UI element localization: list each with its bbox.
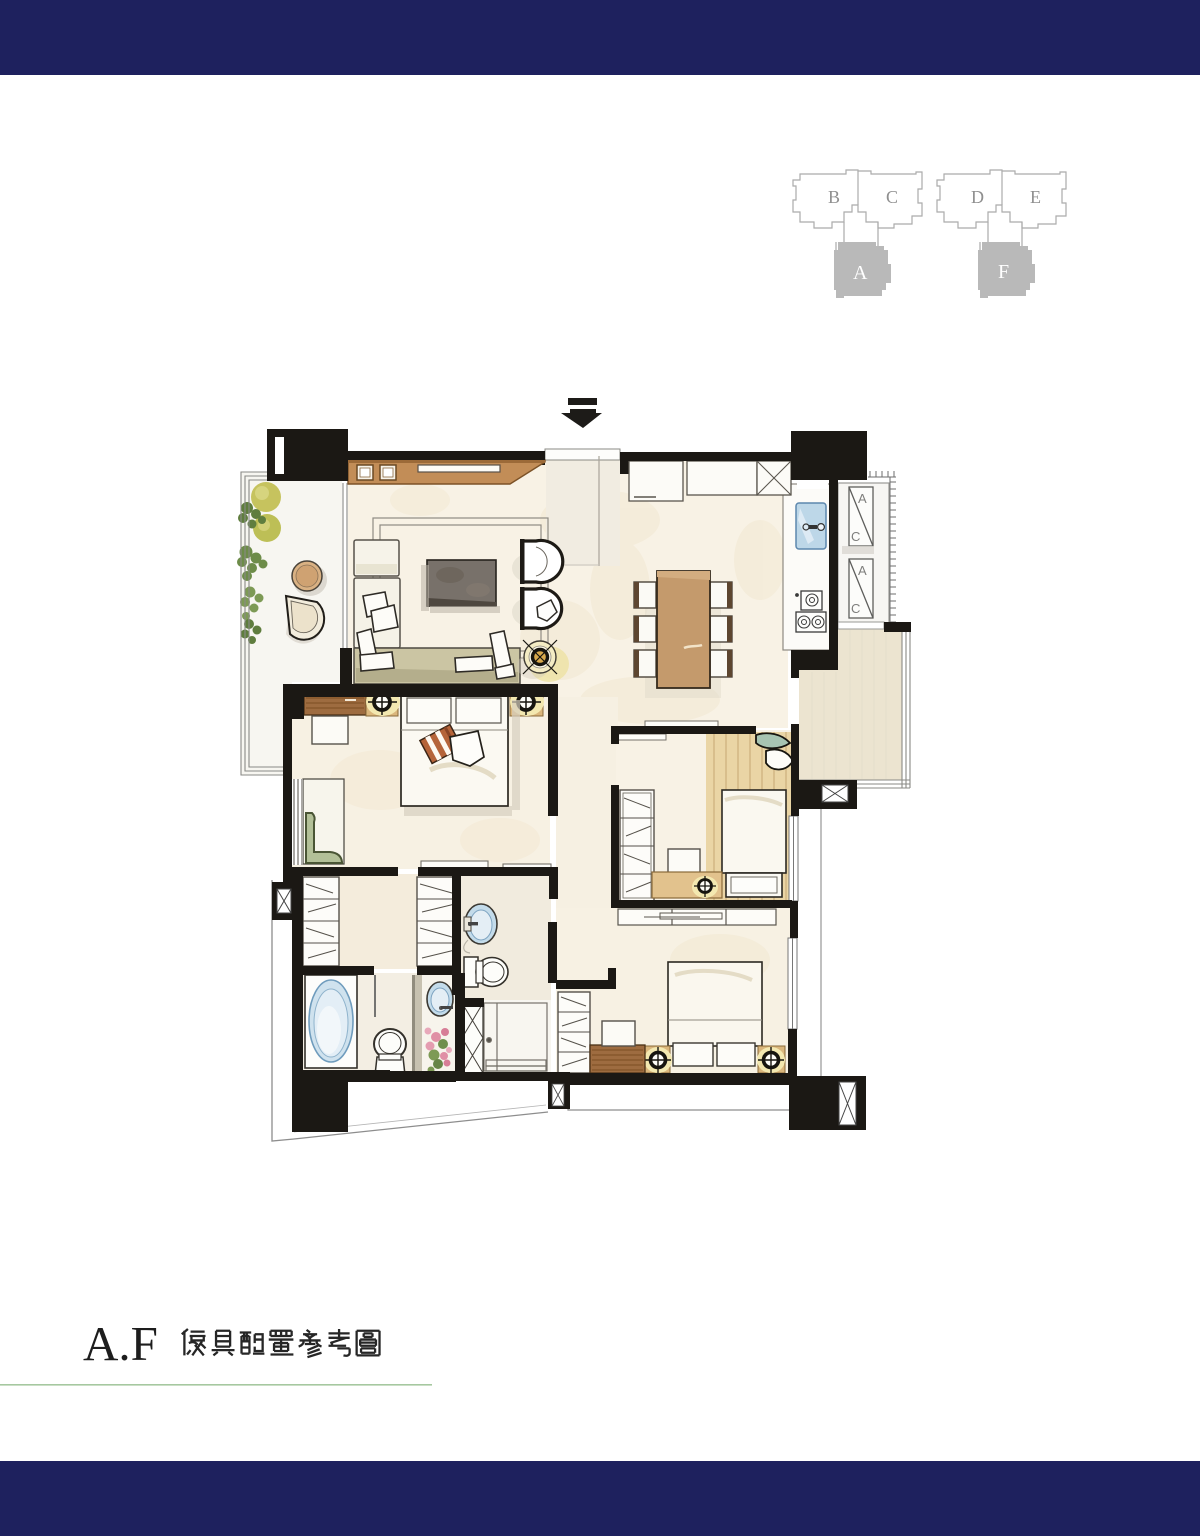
svg-text:F: F <box>998 261 1009 283</box>
svg-text:C: C <box>886 187 898 207</box>
svg-text:C: C <box>851 529 860 544</box>
svg-text:D: D <box>971 187 984 207</box>
svg-text:C: C <box>851 601 860 616</box>
svg-text:A: A <box>858 563 867 578</box>
svg-text:A: A <box>853 262 868 284</box>
svg-text:E: E <box>1030 187 1041 207</box>
svg-text:B: B <box>828 187 840 207</box>
svg-text:A.F: A.F <box>83 1316 158 1371</box>
svg-text:A: A <box>858 491 867 506</box>
